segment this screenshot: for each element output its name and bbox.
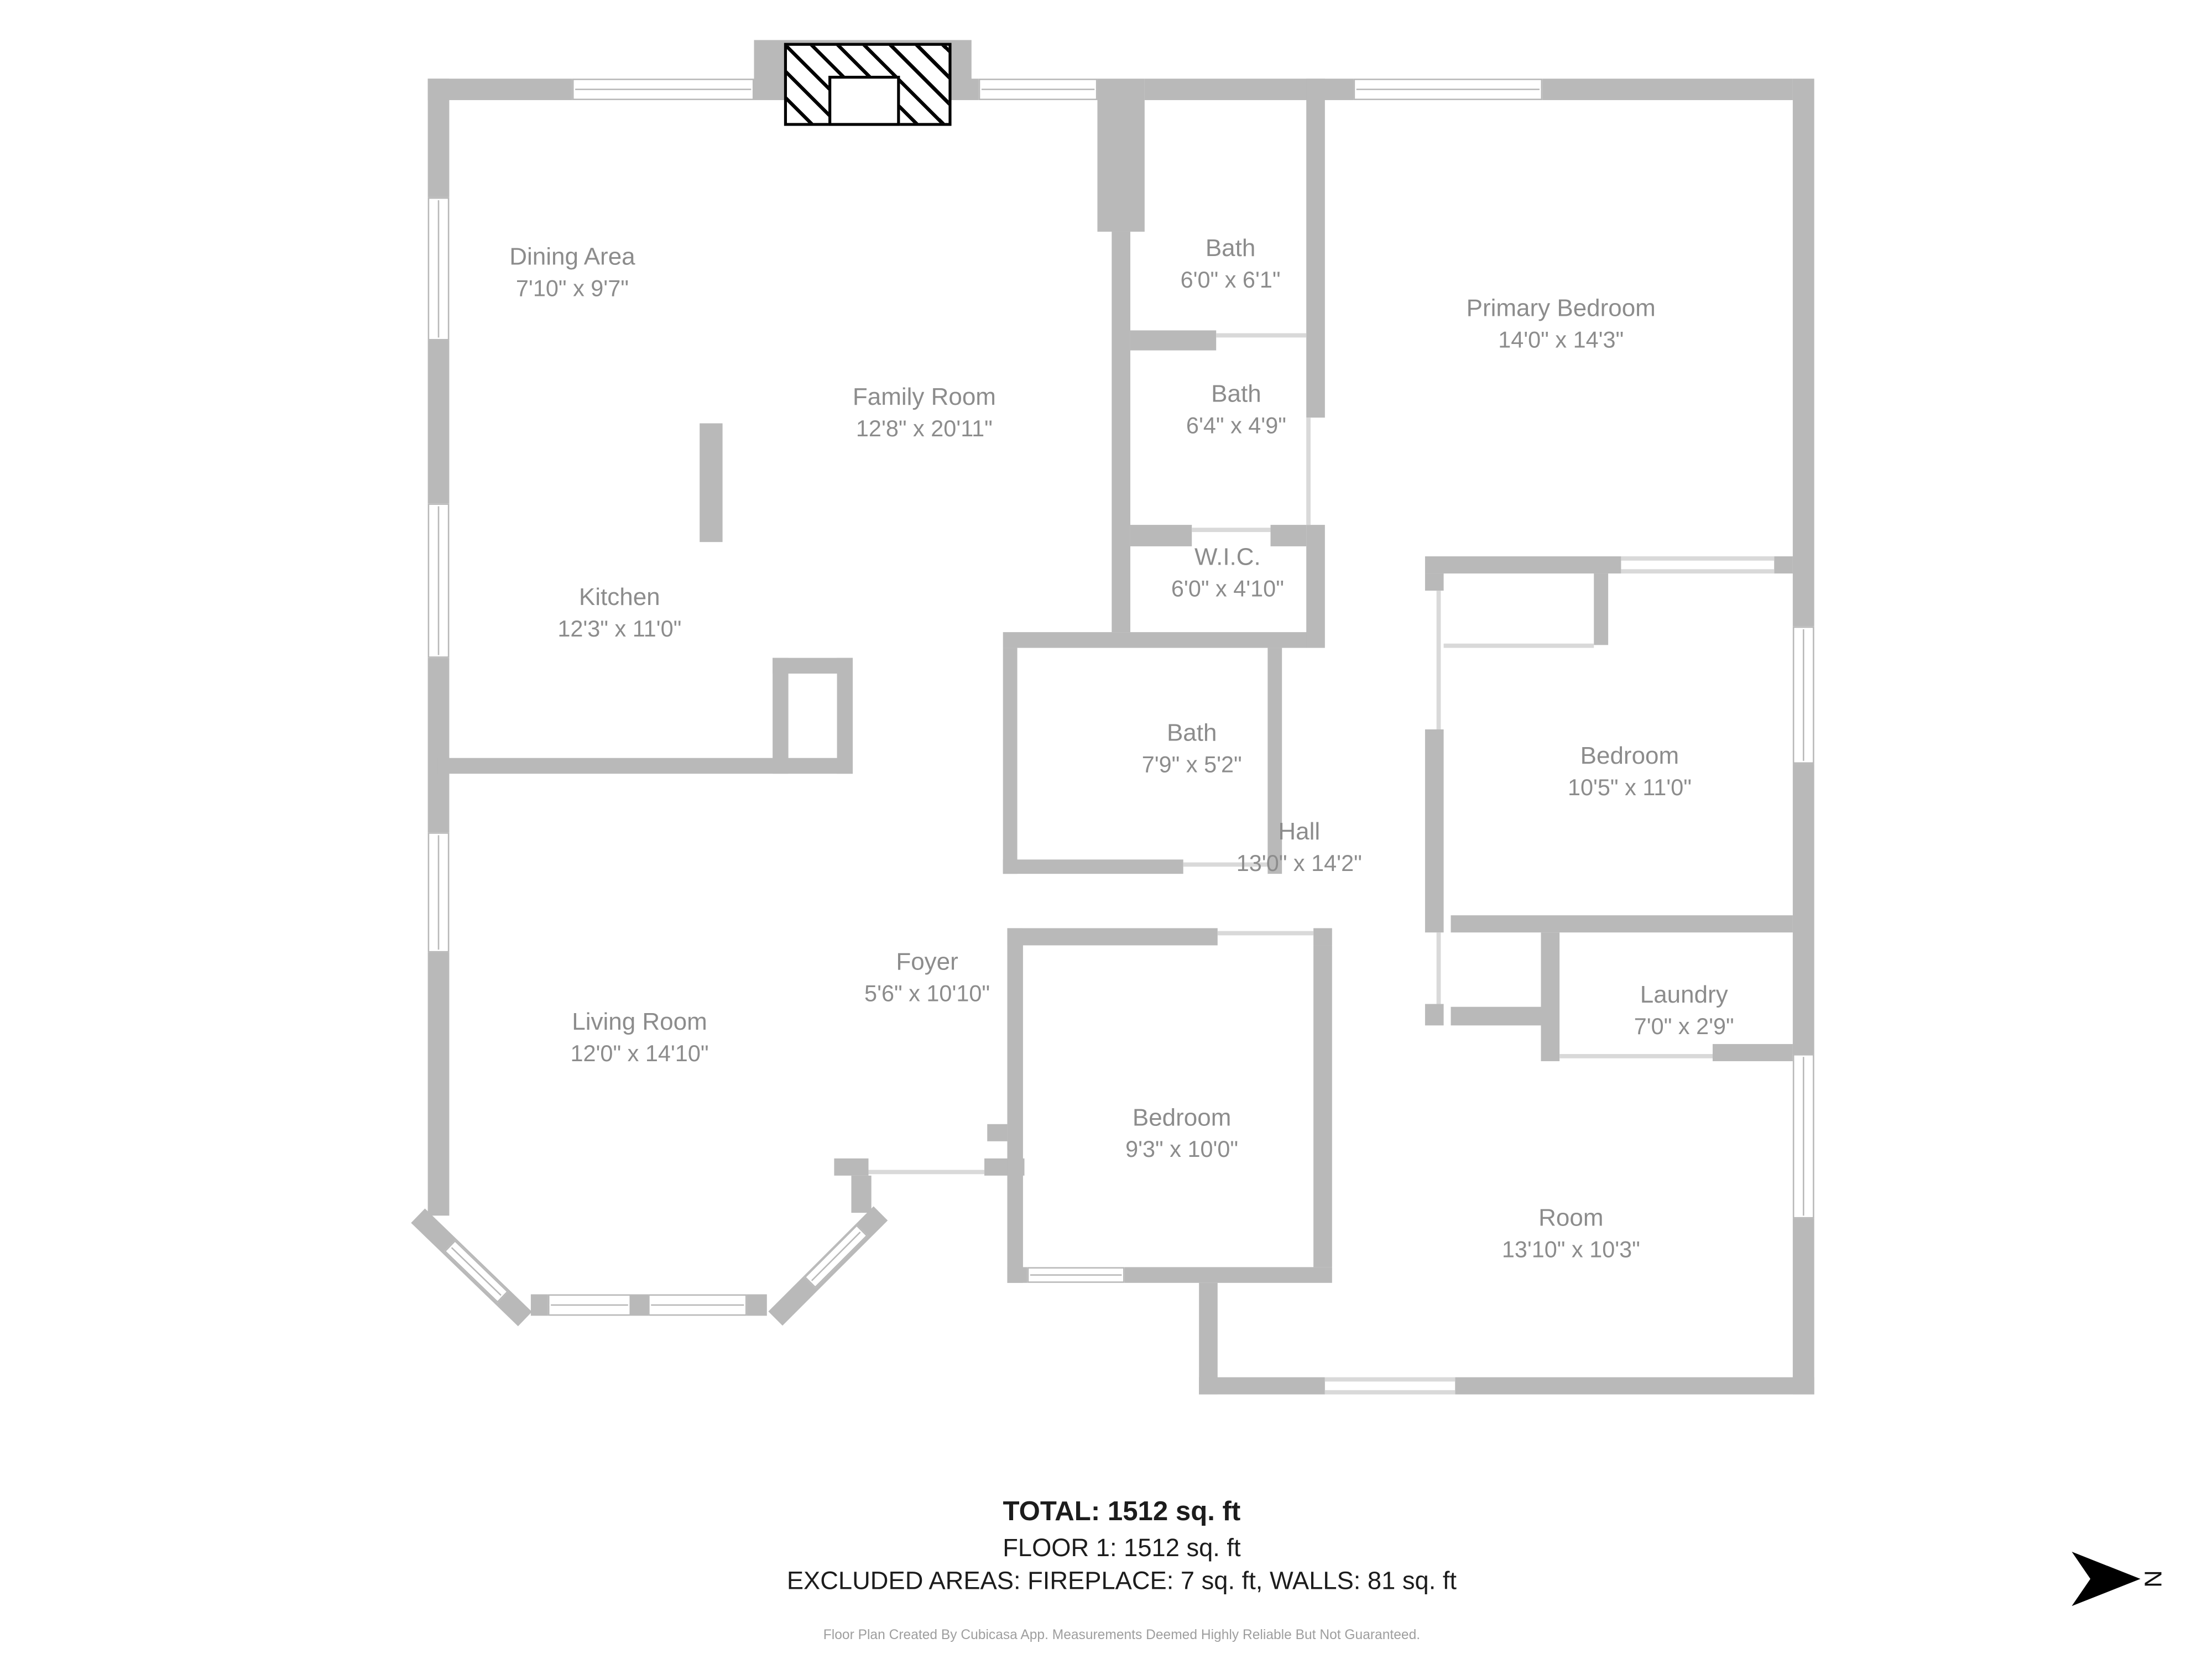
room-dims: 12'8" x 20'11" [853,413,996,446]
floor-area-text: FLOOR 1: 1512 sq. ft [15,1532,2212,1563]
wall-segment [1425,573,1444,591]
wall-segment [631,1295,648,1316]
door-opening [1444,644,1594,648]
wall-segment [1425,1004,1444,1026]
wall-segment [773,758,853,774]
window [428,503,450,658]
window-pane-line [651,1304,744,1306]
room-dims: 10'5" x 11'0" [1568,773,1692,805]
window [572,79,754,100]
wall-segment [1306,525,1325,648]
window-pane-line [982,88,1094,91]
wall-segment [1451,915,1793,932]
area-summary: TOTAL: 1512 sq. ft FLOOR 1: 1512 sq. ft … [15,1496,2212,1596]
door-opening [1325,1390,1455,1395]
room-name: Living Room [570,1005,708,1038]
wall-segment [1003,648,1018,874]
wall-segment [1112,232,1130,632]
wall-segment [428,79,450,197]
wall-segment [773,658,853,674]
window-pane-line [1802,629,1804,761]
window [1793,1054,1814,1218]
room-dims: 7'10" x 9'7" [509,273,635,306]
room-label-bedroom-2: Bedroom 10'5" x 11'0" [1568,739,1692,805]
window-pane-line [437,200,440,337]
wall-segment [438,758,773,774]
door-opening [868,1170,984,1175]
window [548,1295,631,1316]
window-pane-line [1802,1057,1804,1215]
door-opening [1218,931,1313,936]
room-name: Bedroom [1568,739,1692,772]
window [979,79,1098,100]
wall-segment [1007,928,1217,945]
window [428,832,450,952]
room-label-bath-3: Bath 7'9" x 5'2" [1142,717,1242,782]
wall-segment [1199,1283,1218,1395]
wall-segment [1774,556,1793,573]
window [648,1295,747,1316]
window-angled [804,1224,868,1288]
door-opening [1559,1054,1713,1058]
wall-segment [834,1159,868,1176]
wall-segment [773,658,788,774]
window-pane-line [1357,88,1540,91]
room-dims: 9'3" x 10'0" [1125,1134,1238,1167]
room-label-bath-2: Bath 6'4" x 4'9" [1186,378,1286,444]
window [1793,627,1814,764]
room-dims: 5'6" x 10'10" [864,978,990,1011]
room-dims: 6'0" x 4'10" [1171,573,1284,606]
wall-segment [1793,1218,1814,1394]
door-opening [1192,528,1270,532]
wall-segment [851,1176,871,1213]
window-pane-line [811,1232,861,1282]
wall-segment [1313,945,1332,1267]
wall-segment [1793,764,1814,1054]
wall-segment [531,1295,548,1316]
room-name: Foyer [864,945,990,978]
room-label-hall: Hall 13'0" x 14'2" [1237,815,1362,881]
wall-segment [1003,859,1183,874]
wall-segment [700,424,722,542]
wall-segment [428,79,572,100]
wall-segment [1007,1267,1027,1282]
door-opening [1621,569,1774,573]
room-dims: 12'3" x 11'0" [557,613,681,646]
wall-segment [1313,928,1332,945]
wall-segment [987,1124,1007,1141]
wall-segment [1003,632,1324,648]
wall-segment [1594,573,1608,645]
wall-segment [952,79,979,100]
total-area-text: TOTAL: 1512 sq. ft [15,1496,2212,1530]
room-dims: 13'0" x 14'2" [1237,848,1362,881]
wall-segment [1455,1378,1814,1395]
north-label: N [2138,1570,2167,1588]
room-name: Bath [1181,232,1281,264]
disclaimer-text: Floor Plan Created By Cubicasa App. Meas… [15,1627,2212,1643]
wall-segment [428,341,450,504]
window-pane-line [451,1247,502,1296]
wall-segment [428,658,450,833]
room-name: Bath [1142,717,1242,749]
wall-segment [1451,1007,1541,1026]
room-label-foyer: Foyer 5'6" x 10'10" [864,945,990,1011]
compass: N [2072,1552,2186,1616]
room-name: Primary Bedroom [1467,292,1656,325]
room-name: Hall [1237,815,1362,848]
wall-segment [1145,79,1311,100]
room-label-family-room: Family Room 12'8" x 20'11" [853,380,996,446]
door-opening [1437,932,1441,1004]
room-dims: 7'9" x 5'2" [1142,749,1242,782]
room-label-living-room: Living Room 12'0" x 14'10" [570,1005,708,1071]
room-dims: 6'0" x 6'1" [1181,264,1281,297]
wall-segment [1541,932,1560,1061]
room-name: W.I.C. [1171,541,1284,573]
fireplace-icon [784,43,952,126]
room-label-laundry: Laundry 7'0" x 2'9" [1634,978,1734,1044]
room-dims: 7'0" x 2'9" [1634,1011,1734,1044]
door-opening [1216,333,1306,338]
room-name: Kitchen [557,581,681,613]
wall-segment [428,952,450,1215]
room-label-wic: W.I.C. 6'0" x 4'10" [1171,541,1284,607]
room-dims: 13'10" x 10'3" [1502,1234,1640,1267]
wall-segment [1306,79,1325,418]
door-opening [1325,1378,1455,1382]
wall-segment [837,658,853,774]
window [1354,79,1543,100]
window-pane-line [551,1304,628,1306]
north-arrow-icon [2072,1552,2140,1606]
room-label-room: Room 13'10" x 10'3" [1502,1201,1640,1267]
room-name: Laundry [1634,978,1734,1011]
room-dims: 14'0" x 14'3" [1467,325,1656,357]
window-pane-line [437,507,440,655]
room-label-primary-bedroom: Primary Bedroom 14'0" x 14'3" [1467,292,1656,358]
window-pane-line [437,835,440,950]
wall-segment [1425,556,1621,573]
room-name: Room [1502,1201,1640,1234]
floor-plan: Dining Area 7'10" x 9'7" Family Room 12'… [0,0,2212,1659]
window [428,197,450,341]
window [1027,1267,1125,1282]
room-name: Bedroom [1125,1101,1238,1134]
door-opening [1306,418,1311,525]
window-angled [444,1240,509,1303]
window-pane-line [1030,1274,1122,1276]
wall-segment [1125,1267,1332,1282]
excluded-areas-text: EXCLUDED AREAS: FIREPLACE: 7 sq. ft, WAL… [15,1564,2212,1596]
wall-segment [1713,1044,1793,1061]
room-label-bath-1: Bath 6'0" x 6'1" [1181,232,1281,298]
room-label-kitchen: Kitchen 12'3" x 11'0" [557,581,681,646]
door-opening [1437,591,1441,729]
room-label-dining-area: Dining Area 7'10" x 9'7" [509,240,635,306]
wall-segment [747,1295,767,1316]
room-dims: 12'0" x 14'10" [570,1039,708,1071]
door-opening [1621,556,1774,561]
wall-segment [1007,928,1022,1282]
room-dims: 6'4" x 4'9" [1186,410,1286,443]
wall-segment [1542,79,1793,100]
room-label-bedroom-3: Bedroom 9'3" x 10'0" [1125,1101,1238,1167]
wall-segment [1130,330,1216,350]
room-name: Dining Area [509,240,635,273]
wall-segment [1097,79,1144,232]
window-pane-line [575,88,751,91]
wall-segment [1793,79,1814,627]
fireplace-firebox [829,76,900,126]
wall-segment [1425,729,1444,932]
room-name: Bath [1186,378,1286,410]
room-name: Family Room [853,380,996,413]
wall-segment [1199,1378,1325,1395]
